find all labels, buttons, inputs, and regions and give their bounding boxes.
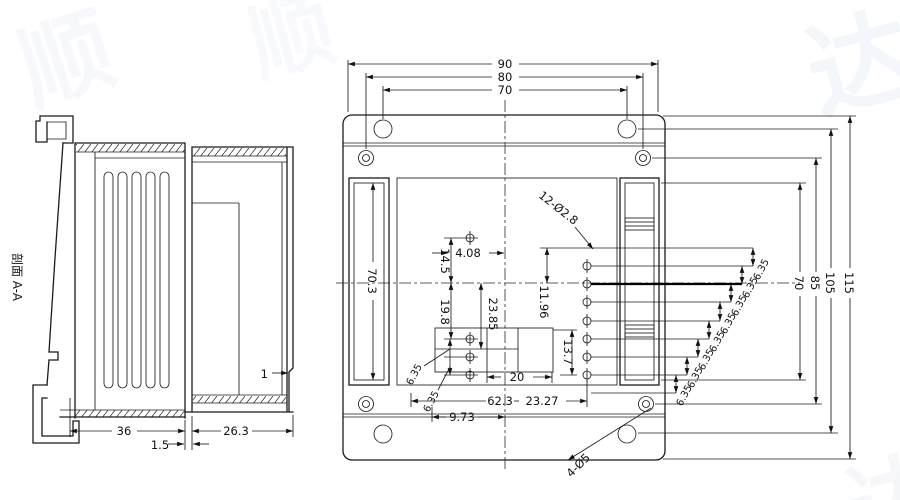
dim-body-width: 36 [117, 424, 132, 438]
dim-cover-width: 26.3 [223, 424, 249, 438]
dim-70-right: 70 [792, 276, 806, 291]
dim-80: 80 [498, 70, 513, 84]
dim-hole-pitch: 6.35 [675, 383, 695, 408]
dim-14-5: 14.5 [438, 248, 452, 274]
side-view: 剖面 A-A [10, 116, 293, 452]
center-dimensions: 14.5 19.8 4.08 23.85 11.96 13.7 20 [432, 238, 577, 384]
hole-callout-text: 12-Ø2.8 [536, 188, 581, 227]
drawing-canvas: 顺 达 顺 达 剖面 A-A [0, 0, 900, 500]
dim-115: 115 [842, 272, 856, 294]
dim-rect-width: 20 [510, 370, 525, 384]
side-view-dimensions: 36 1.5 26.3 1 [70, 367, 293, 452]
right-slot [620, 178, 659, 385]
corner-hole-callout: 4-Ø5 [563, 408, 651, 480]
dim-9-73: 9.73 [449, 410, 475, 424]
dim-70-top: 70 [498, 83, 513, 97]
vent-slots [104, 172, 169, 388]
left-pitch-dims: 6.35 6.35 [405, 339, 450, 414]
hole-pitch-chain: 6.35 6.35 6.35 6.35 6.35 6.35 6.35 6.35 [540, 248, 772, 408]
corner-hole-callout-text: 4-Ø5 [563, 450, 593, 480]
dim-hole-pitch: 6.35 [405, 362, 425, 387]
hole-callout: 12-Ø2.8 [536, 188, 593, 249]
dim-23-85: 23.85 [486, 298, 500, 331]
dim-gap: 1.5 [151, 438, 169, 452]
dim-105: 105 [823, 272, 837, 294]
dim-85: 85 [808, 276, 822, 291]
dim-19-8: 19.8 [438, 299, 452, 325]
front-view: 70.3 [336, 57, 856, 480]
dim-90: 90 [498, 57, 513, 71]
top-dimensions: 90 80 70 [348, 57, 658, 149]
dim-wall-step: 1 [261, 367, 268, 381]
center-rectangle [435, 328, 553, 372]
section-label: 剖面 A-A [10, 253, 24, 302]
dim-13-7: 13.7 [561, 339, 575, 365]
dim-slot-length: 70.3 [365, 268, 379, 294]
dim-11-96: 11.96 [537, 286, 551, 319]
dim-4-08: 4.08 [455, 246, 481, 260]
technical-drawing: 剖面 A-A [0, 0, 900, 500]
dim-23-27: 23.27 [526, 394, 559, 408]
dim-62-3: 62.3 [487, 394, 513, 408]
